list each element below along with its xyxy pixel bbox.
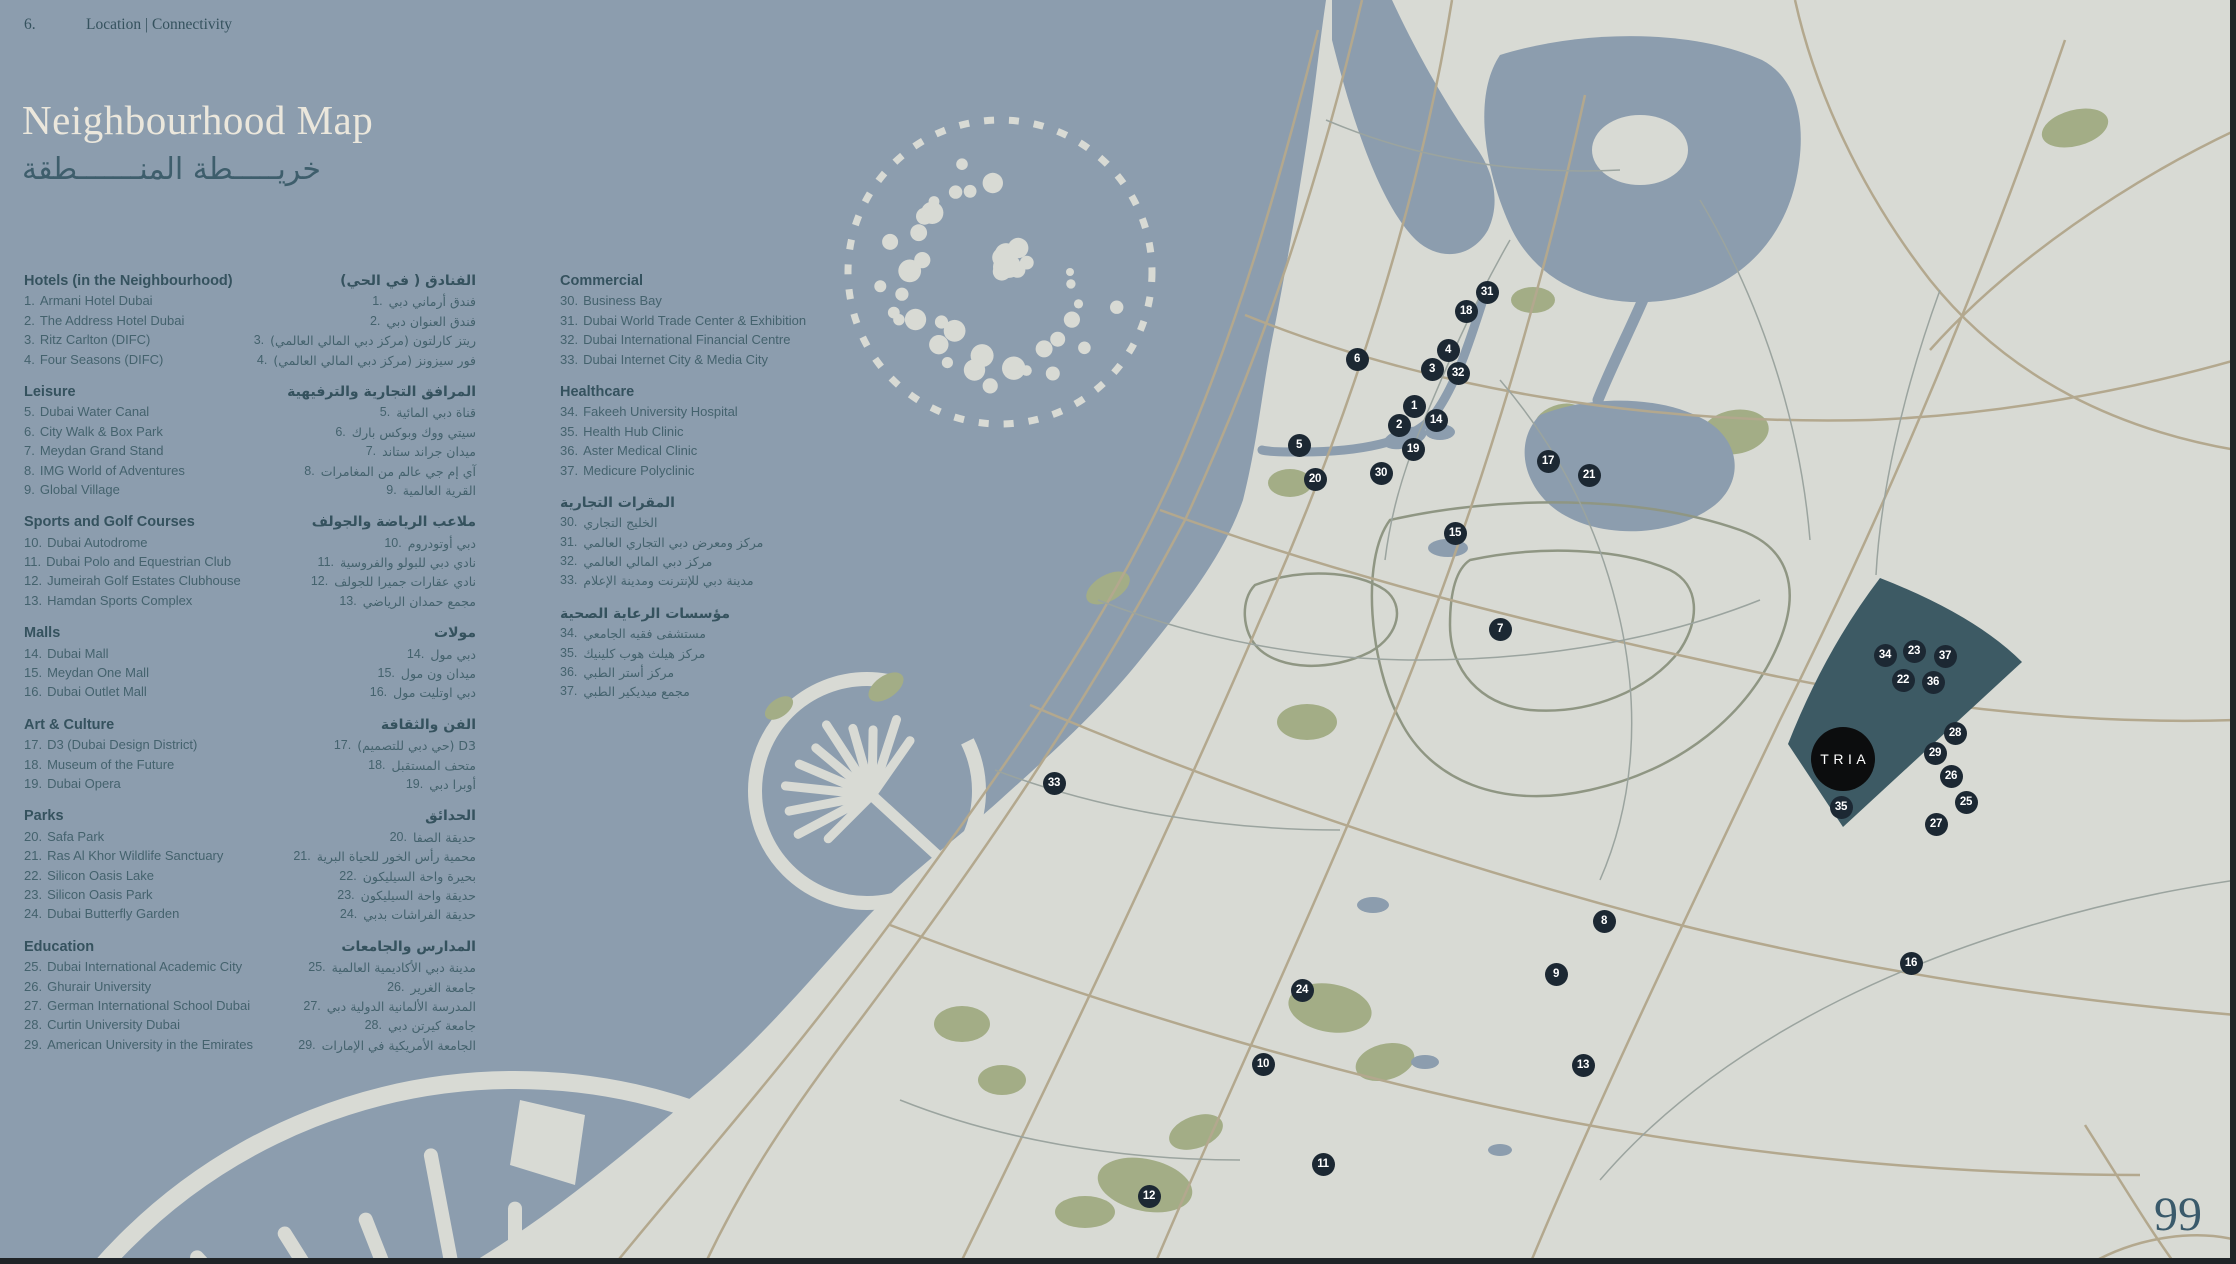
- legend-item-number: 34.: [560, 402, 578, 421]
- map-marker-number: 5: [1296, 439, 1302, 451]
- legend-item-en: 5.Dubai Water Canal: [24, 402, 149, 421]
- legend-category-header: Educationالمدارس والجامعات: [24, 938, 476, 957]
- legend-item-ar: 34.مستشفى فقيه الجامعي: [560, 624, 706, 643]
- map-marker-number: 22: [1897, 674, 1909, 686]
- legend-item-label-en: Meydan One Mall: [47, 663, 149, 682]
- legend-item-ar: 1.فندق أرماني دبي: [372, 292, 476, 311]
- legend-item-ar: 20.حديقة الصفا: [390, 828, 476, 847]
- legend-left-column: Hotels (in the Neighbourhood)الفنادق ( ف…: [24, 272, 476, 1068]
- legend-middle-column: Commercial30.Business Bay31.Dubai World …: [560, 272, 890, 716]
- legend-category-header: Leisureالمرافق التجارية والترفيهية: [24, 383, 476, 402]
- legend-item-label-en: Business Bay: [583, 291, 662, 310]
- legend-category-header: Healthcare: [560, 383, 890, 402]
- legend-item-en: 1.Armani Hotel Dubai: [24, 291, 153, 310]
- legend-item: 30.الخليج التجاري: [560, 513, 890, 532]
- legend-item-number: 16.: [370, 683, 387, 702]
- legend-item-label-en: Health Hub Clinic: [583, 422, 683, 441]
- map-marker-27: 27: [1925, 813, 1948, 836]
- legend-item: 34.Fakeeh University Hospital: [560, 402, 890, 421]
- legend-item-number: 17.: [334, 736, 351, 755]
- map-marker-number: 27: [1930, 818, 1942, 830]
- legend-item-en: 36.Aster Medical Clinic: [560, 441, 697, 460]
- legend-item: 31.مركز ومعرض دبي التجاري العالمي: [560, 533, 890, 552]
- legend-item-en: 20.Safa Park: [24, 827, 104, 846]
- legend-item-label-ar: مركز ومعرض دبي التجاري العالمي: [583, 533, 763, 552]
- legend-item-en: 26.Ghurair University: [24, 977, 151, 996]
- legend-item-ar: 36.مركز أستر الطبي: [560, 663, 674, 682]
- legend-item-ar: 13.مجمع حمدان الرياضي: [339, 592, 476, 611]
- map-marker-number: 36: [1927, 676, 1939, 688]
- legend-item-number: 17.: [24, 735, 42, 754]
- legend-item: 11.Dubai Polo and Equestrian Club11.نادي…: [24, 552, 476, 571]
- legend-item-label-en: The Address Hotel Dubai: [40, 311, 185, 330]
- legend-item-en: 35.Health Hub Clinic: [560, 422, 684, 441]
- legend-item-ar: 16.دبي اوتليت مول: [370, 683, 476, 702]
- legend-item-number: 29.: [24, 1035, 42, 1054]
- map-marker-number: 14: [1430, 414, 1442, 426]
- map-marker-2: 2: [1388, 414, 1411, 437]
- legend-item-label-en: Silicon Oasis Lake: [47, 866, 154, 885]
- legend-item-label-en: Medicure Polyclinic: [583, 461, 694, 480]
- legend-item-label-en: Dubai World Trade Center & Exhibition: [583, 311, 806, 330]
- legend-item: 9.Global Village9.القرية العالمية: [24, 480, 476, 499]
- legend-middle-english: Commercial30.Business Bay31.Dubai World …: [560, 272, 890, 480]
- map-marker-number: 10: [1257, 1058, 1269, 1070]
- page-title: Neighbourhood Map: [22, 96, 373, 144]
- map-marker-number: 31: [1481, 286, 1493, 298]
- legend-item-label-en: Curtin University Dubai: [47, 1015, 180, 1034]
- legend-item-number: 34.: [560, 624, 577, 643]
- map-marker-15: 15: [1444, 522, 1467, 545]
- legend-item-number: 3.: [24, 330, 35, 349]
- legend-item-label-en: Dubai Opera: [47, 774, 121, 793]
- legend-item-number: 21.: [293, 847, 310, 866]
- legend-item-number: 25.: [24, 957, 42, 976]
- legend-item-number: 33.: [560, 350, 578, 369]
- legend-heading-en: Hotels (in the Neighbourhood): [24, 272, 233, 291]
- map-marker-number: 37: [1939, 650, 1951, 662]
- legend-item-en: 34.Fakeeh University Hospital: [560, 402, 738, 421]
- map-marker-number: 15: [1449, 527, 1461, 539]
- legend-item: 24.Dubai Butterfly Garden24.حديقة الفراش…: [24, 904, 476, 923]
- legend-item-label-en: Fakeeh University Hospital: [583, 402, 738, 421]
- legend-item-number: 11.: [24, 552, 41, 571]
- legend-item-en: 9.Global Village: [24, 480, 120, 499]
- legend-item-label-ar: الخليج التجاري: [583, 513, 657, 532]
- legend-item-number: 23.: [24, 885, 42, 904]
- legend-item-ar: 21.محمية رأس الخور للحياة البرية: [293, 847, 476, 866]
- legend-item: 32.Dubai International Financial Centre: [560, 330, 890, 349]
- legend-item: 29.American University in the Emirates29…: [24, 1035, 476, 1054]
- map-marker-1: 1: [1403, 395, 1426, 418]
- legend-item-ar: 4.فور سيزونز (مركز دبي المالي العالمي): [257, 351, 476, 370]
- legend-item-label-en: City Walk & Box Park: [40, 422, 163, 441]
- legend-item-ar: 9.القرية العالمية: [386, 481, 476, 500]
- map-marker-5: 5: [1288, 434, 1311, 457]
- legend-item-number: 2.: [24, 311, 35, 330]
- legend-item-label-ar: دبي اوتليت مول: [393, 683, 476, 702]
- legend-category: Art & Cultureالفن والثقافة17.D3 (Dubai D…: [24, 716, 476, 794]
- legend-item-label-ar: أوبرا دبي: [429, 775, 476, 794]
- legend-item-label-en: Silicon Oasis Park: [47, 885, 152, 904]
- legend-item-ar: 5.قناة دبي المائية: [380, 403, 476, 422]
- map-marker-number: 19: [1407, 443, 1419, 455]
- legend-item-en: 7.Meydan Grand Stand: [24, 441, 163, 460]
- legend-item-label-en: Dubai Water Canal: [40, 402, 149, 421]
- legend-item-number: 10.: [384, 534, 401, 553]
- legend-item-number: 18.: [24, 755, 42, 774]
- legend-item-number: 24.: [340, 905, 357, 924]
- legend-item-number: 3.: [254, 331, 264, 350]
- legend-item-label-ar: فندق أرماني دبي: [389, 292, 476, 311]
- legend-item-ar: 32.مركز دبي المالي العالمي: [560, 552, 712, 571]
- legend-item-number: 25.: [308, 958, 325, 977]
- legend-item-en: 10.Dubai Autodrome: [24, 533, 148, 552]
- map-marker-number: 17: [1542, 455, 1554, 467]
- map-marker-number: 23: [1908, 645, 1920, 657]
- legend-item-number: 4.: [257, 351, 267, 370]
- legend-item-ar: 22.بحيرة واحة السيليكون: [339, 867, 476, 886]
- legend-item: 16.Dubai Outlet Mall16.دبي اوتليت مول: [24, 682, 476, 701]
- legend-item-number: 31.: [560, 533, 577, 552]
- legend-item: 2.The Address Hotel Dubai2.فندق العنوان …: [24, 311, 476, 330]
- legend-item-label-ar: قناة دبي المائية: [396, 403, 476, 422]
- legend-item-label-ar: محمية رأس الخور للحياة البرية: [317, 847, 476, 866]
- legend-item-en: 6.City Walk & Box Park: [24, 422, 163, 441]
- legend-item-number: 30.: [560, 291, 578, 310]
- legend-item-label-en: D3 (Dubai Design District): [47, 735, 197, 754]
- legend-heading-ar: ملاعب الرياضة والجولف: [312, 513, 476, 532]
- legend-item-label-en: Dubai Mall: [47, 644, 108, 663]
- map-marker-19: 19: [1402, 438, 1425, 461]
- map-marker-number: 32: [1452, 367, 1464, 379]
- legend-item-en: 30.Business Bay: [560, 291, 662, 310]
- legend-item-number: 7.: [24, 441, 35, 460]
- legend-item-label-ar: حديقة واحة السيليكون: [361, 886, 476, 905]
- legend-item-label-ar: فور سيزونز (مركز دبي المالي العالمي): [273, 351, 476, 370]
- map-marker-13: 13: [1572, 1054, 1595, 1077]
- legend-item-number: 35.: [560, 644, 577, 663]
- legend-item-number: 28.: [365, 1016, 382, 1035]
- legend-item-en: 33.Dubai Internet City & Media City: [560, 350, 768, 369]
- legend-item: 23.Silicon Oasis Park23.حديقة واحة السيل…: [24, 885, 476, 904]
- map-marker-6: 6: [1346, 348, 1369, 371]
- legend-item: 27.German International School Dubai27.ا…: [24, 996, 476, 1015]
- legend-item-ar: 15.ميدان ون مول: [378, 664, 476, 683]
- map-marker-16: 16: [1900, 952, 1923, 975]
- legend-middle-arabic: المقرات التجارية30.الخليج التجاري31.مركز…: [560, 494, 890, 702]
- legend-item-number: 16.: [24, 682, 42, 701]
- map-marker-26: 26: [1940, 765, 1963, 788]
- legend-item-number: 8.: [304, 462, 314, 481]
- legend-item-label-ar: بحيرة واحة السيليكون: [363, 867, 476, 886]
- legend-item-label-en: Safa Park: [47, 827, 104, 846]
- map-marker-7: 7: [1489, 618, 1512, 641]
- legend-item-ar: 3.ريتز كارلتون (مركز دبي المالي العالمي): [254, 331, 476, 350]
- legend-item: 18.Museum of the Future18.متحف المستقبل: [24, 755, 476, 774]
- legend-heading-en: Education: [24, 938, 94, 957]
- map-marker-9: 9: [1545, 963, 1568, 986]
- legend-heading-ar: مؤسسات الرعاية الصحية: [560, 605, 730, 624]
- map-marker-number: 28: [1949, 727, 1961, 739]
- legend-item-en: 17.D3 (Dubai Design District): [24, 735, 197, 754]
- legend-item-number: 1.: [372, 292, 382, 311]
- map-marker-22: 22: [1892, 669, 1915, 692]
- legend-item: 30.Business Bay: [560, 291, 890, 310]
- legend-category-header: المقرات التجارية: [560, 494, 890, 513]
- legend-item-label-ar: مجمع ميديكير الطبي: [583, 682, 689, 701]
- legend-item-ar: 24.حديقة الفراشات بدبي: [340, 905, 476, 924]
- legend-category: Commercial30.Business Bay31.Dubai World …: [560, 272, 890, 369]
- legend-category: Sports and Golf Coursesملاعب الرياضة وال…: [24, 513, 476, 610]
- legend-item: 35.مركز هيلث هوب كلينيك: [560, 644, 890, 663]
- legend-item-ar: 30.الخليج التجاري: [560, 513, 657, 532]
- legend-item-ar: 28.جامعة كيرتن دبي: [365, 1016, 476, 1035]
- legend-item: 33.مدينة دبي للإنترنت ومدينة الإعلام: [560, 571, 890, 590]
- legend-item-number: 4.: [24, 350, 35, 369]
- map-marker-34: 34: [1874, 644, 1897, 667]
- map-marker-number: 6: [1354, 353, 1360, 365]
- legend-heading-ar: الفن والثقافة: [381, 716, 476, 735]
- legend-item-number: 29.: [298, 1036, 315, 1055]
- legend-item-number: 37.: [560, 461, 578, 480]
- legend-item-ar: 10.دبي أوتودروم: [384, 534, 476, 553]
- legend-category: Educationالمدارس والجامعات25.Dubai Inter…: [24, 938, 476, 1054]
- legend-item-en: 14.Dubai Mall: [24, 644, 109, 663]
- breadcrumb: Location | Connectivity: [86, 16, 232, 34]
- legend-item-en: 31.Dubai World Trade Center & Exhibition: [560, 311, 806, 330]
- legend-item-number: 14.: [24, 644, 42, 663]
- legend-category-arabic: المقرات التجارية30.الخليج التجاري31.مركز…: [560, 494, 890, 591]
- legend-item-label-ar: فندق العنوان دبي: [386, 312, 476, 331]
- legend-item: 12.Jumeirah Golf Estates Clubhouse12.ناد…: [24, 571, 476, 590]
- legend-item: 35.Health Hub Clinic: [560, 422, 890, 441]
- legend-item-number: 28.: [24, 1015, 42, 1034]
- map-marker-30: 30: [1370, 462, 1393, 485]
- legend-item-label-en: Ras Al Khor Wildlife Sanctuary: [47, 846, 223, 865]
- legend-item-number: 7.: [366, 442, 376, 461]
- legend-item: 20.Safa Park20.حديقة الصفا: [24, 827, 476, 846]
- map-marker-number: 34: [1879, 649, 1891, 661]
- page-header: 6. Location | Connectivity: [24, 16, 624, 34]
- legend-item-number: 5.: [380, 403, 390, 422]
- map-marker-number: 29: [1929, 747, 1941, 759]
- legend-item-en: 15.Meydan One Mall: [24, 663, 149, 682]
- legend-item: 37.Medicure Polyclinic: [560, 461, 890, 480]
- map-marker-number: 20: [1309, 473, 1321, 485]
- legend-item: 25.Dubai International Academic City25.م…: [24, 957, 476, 976]
- legend-category-header: Parksالحدائق: [24, 807, 476, 826]
- legend-item: 31.Dubai World Trade Center & Exhibition: [560, 311, 890, 330]
- legend-item-label-ar: مدينة دبي للإنترنت ومدينة الإعلام: [583, 571, 753, 590]
- legend-item-label-ar: مجمع حمدان الرياضي: [363, 592, 476, 611]
- map-marker-number: 13: [1577, 1059, 1589, 1071]
- legend-item-number: 6.: [24, 422, 35, 441]
- map-marker-17: 17: [1537, 450, 1560, 473]
- legend-item-label-ar: D3 (حي دبي للتصميم): [357, 736, 476, 755]
- map-marker-25: 25: [1955, 791, 1978, 814]
- legend-item-en: 13.Hamdan Sports Complex: [24, 591, 192, 610]
- project-marker-tria: TRIA: [1811, 727, 1875, 791]
- legend-item: 28.Curtin University Dubai28.جامعة كيرتن…: [24, 1015, 476, 1034]
- legend-item-label-en: Aster Medical Clinic: [583, 441, 697, 460]
- legend-item-label-ar: القرية العالمية: [403, 481, 476, 500]
- map-marker-number: 25: [1960, 796, 1972, 808]
- legend-item-number: 30.: [560, 513, 577, 532]
- legend-heading-en: Sports and Golf Courses: [24, 513, 195, 532]
- legend-item-label-en: Dubai Autodrome: [47, 533, 147, 552]
- legend-item-label-en: Dubai Polo and Equestrian Club: [46, 552, 231, 571]
- legend-item-ar: 2.فندق العنوان دبي: [370, 312, 476, 331]
- legend-category: Leisureالمرافق التجارية والترفيهية5.Duba…: [24, 383, 476, 499]
- legend-item: 33.Dubai Internet City & Media City: [560, 350, 890, 369]
- legend-item: 10.Dubai Autodrome10.دبي أوتودروم: [24, 533, 476, 552]
- legend-item-number: 15.: [378, 664, 395, 683]
- legend-item-ar: 29.الجامعة الأمريكية في الإمارات: [298, 1036, 476, 1055]
- legend-item-ar: 26.جامعة الغرير: [387, 978, 476, 997]
- legend-item-label-en: Dubai International Financial Centre: [583, 330, 790, 349]
- legend-item-en: 22.Silicon Oasis Lake: [24, 866, 154, 885]
- map-marker-31: 31: [1476, 281, 1499, 304]
- legend-item-number: 2.: [370, 312, 380, 331]
- legend-item-label-en: Hamdan Sports Complex: [47, 591, 192, 610]
- legend-item-ar: 37.مجمع ميديكير الطبي: [560, 682, 690, 701]
- map-marker-24: 24: [1291, 979, 1314, 1002]
- legend-heading-ar: الفنادق ( في الحي): [340, 272, 476, 291]
- map-marker-14: 14: [1425, 409, 1448, 432]
- legend-item-en: 25.Dubai International Academic City: [24, 957, 242, 976]
- map-marker-21: 21: [1578, 464, 1601, 487]
- map-marker-number: 24: [1296, 984, 1308, 996]
- legend-item-en: 28.Curtin University Dubai: [24, 1015, 180, 1034]
- legend-item-number: 19.: [406, 775, 423, 794]
- legend-category: Hotels (in the Neighbourhood)الفنادق ( ف…: [24, 272, 476, 369]
- legend-item-number: 37.: [560, 682, 577, 701]
- map-marker-36: 36: [1922, 671, 1945, 694]
- legend-item-number: 36.: [560, 441, 578, 460]
- legend-item-number: 9.: [386, 481, 396, 500]
- legend-item-en: 4.Four Seasons (DIFC): [24, 350, 163, 369]
- legend-category-header: Hotels (in the Neighbourhood)الفنادق ( ف…: [24, 272, 476, 291]
- legend-item-label-ar: ميدان جراند ستاند: [382, 442, 476, 461]
- map-marker-number: 7: [1497, 623, 1503, 635]
- legend-item-label-en: Four Seasons (DIFC): [40, 350, 164, 369]
- map-marker-18: 18: [1455, 300, 1478, 323]
- legend-heading-en: Art & Culture: [24, 716, 114, 735]
- legend-item-en: 21.Ras Al Khor Wildlife Sanctuary: [24, 846, 223, 865]
- legend-item-label-ar: مركز أستر الطبي: [583, 663, 674, 682]
- legend-item-ar: 6.سيتي ووك وبوكس بارك: [335, 423, 476, 442]
- legend-item-label-ar: ميدان ون مول: [401, 664, 476, 683]
- legend-item-number: 5.: [24, 402, 35, 421]
- legend-item-en: 18.Museum of the Future: [24, 755, 174, 774]
- legend-item: 15.Meydan One Mall15.ميدان ون مول: [24, 663, 476, 682]
- legend-item-label-ar: سيتي ووك وبوكس بارك: [352, 423, 476, 442]
- legend-item-en: 16.Dubai Outlet Mall: [24, 682, 147, 701]
- page-number: 99: [2154, 1187, 2202, 1242]
- legend-item-label-ar: آي إم جي عالم من المغامرات: [321, 462, 476, 481]
- legend-item-number: 35.: [560, 422, 578, 441]
- legend-item-en: 19.Dubai Opera: [24, 774, 121, 793]
- map-marker-20: 20: [1304, 468, 1327, 491]
- legend-item: 32.مركز دبي المالي العالمي: [560, 552, 890, 571]
- legend-heading-ar: مولات: [434, 624, 476, 643]
- legend-item-label-en: Dubai Internet City & Media City: [583, 350, 768, 369]
- legend-item-number: 12.: [311, 572, 328, 591]
- legend-item-en: 37.Medicure Polyclinic: [560, 461, 694, 480]
- page-title-arabic: خريـــــطة المنـــــــطقة: [22, 152, 321, 187]
- legend-heading-en: Commercial: [560, 272, 643, 291]
- map-marker-29: 29: [1924, 742, 1947, 765]
- legend-category-header: Sports and Golf Coursesملاعب الرياضة وال…: [24, 513, 476, 532]
- legend-item: 22.Silicon Oasis Lake22.بحيرة واحة السيل…: [24, 866, 476, 885]
- legend-item: 37.مجمع ميديكير الطبي: [560, 682, 890, 701]
- legend-item-number: 19.: [24, 774, 42, 793]
- legend-item-ar: 11.نادي دبي للبولو والفروسية: [318, 553, 476, 572]
- legend-item-number: 1.: [24, 291, 35, 310]
- legend-category: Parksالحدائق20.Safa Park20.حديقة الصفا21…: [24, 807, 476, 923]
- legend-item: 1.Armani Hotel Dubai1.فندق أرماني دبي: [24, 291, 476, 310]
- map-marker-number: 21: [1583, 469, 1595, 481]
- legend-item-label-ar: متحف المستقبل: [392, 756, 476, 775]
- legend-category-header: Commercial: [560, 272, 890, 291]
- legend-category-header: مؤسسات الرعاية الصحية: [560, 605, 890, 624]
- legend-item-number: 21.: [24, 846, 42, 865]
- legend-heading-ar: المقرات التجارية: [560, 494, 675, 513]
- legend-item-label-ar: الجامعة الأمريكية في الإمارات: [322, 1036, 476, 1055]
- legend-item-en: 3.Ritz Carlton (DIFC): [24, 330, 150, 349]
- map-marker-4: 4: [1437, 339, 1460, 362]
- legend-item-label-ar: مركز هيلث هوب كلينيك: [583, 644, 705, 663]
- legend-item-label-ar: نادي دبي للبولو والفروسية: [340, 553, 476, 572]
- legend-category: Healthcare34.Fakeeh University Hospital3…: [560, 383, 890, 480]
- page-edge-bottom: [0, 1258, 2236, 1264]
- legend-item-label-en: Meydan Grand Stand: [40, 441, 164, 460]
- world-islands: [874, 158, 1123, 393]
- legend-item-label-ar: ريتز كارلتون (مركز دبي المالي العالمي): [270, 331, 476, 350]
- legend-item-en: 2.The Address Hotel Dubai: [24, 311, 184, 330]
- legend-item-label-en: Global Village: [40, 480, 120, 499]
- legend-item-label-en: Ghurair University: [47, 977, 151, 996]
- legend-item-en: 29.American University in the Emirates: [24, 1035, 253, 1054]
- legend-item-label-en: Ritz Carlton (DIFC): [40, 330, 151, 349]
- legend-item-number: 27.: [303, 997, 320, 1016]
- map-marker-number: 8: [1601, 915, 1607, 927]
- legend-category-header: Mallsمولات: [24, 624, 476, 643]
- map-marker-number: 4: [1445, 344, 1451, 356]
- map-marker-number: 18: [1460, 305, 1472, 317]
- legend-item-en: 24.Dubai Butterfly Garden: [24, 904, 179, 923]
- legend-item-ar: 23.حديقة واحة السيليكون: [337, 886, 476, 905]
- legend-item: 36.مركز أستر الطبي: [560, 663, 890, 682]
- legend-item-label-ar: حديقة الصفا: [413, 828, 476, 847]
- legend-item-label-ar: مدينة دبي الأكاديمية العالمية: [332, 958, 476, 977]
- legend-item-en: 27.German International School Dubai: [24, 996, 250, 1015]
- legend-item-number: 24.: [24, 904, 42, 923]
- legend-item-number: 31.: [560, 311, 578, 330]
- legend-item-number: 8.: [24, 461, 35, 480]
- map-marker-12: 12: [1138, 1185, 1161, 1208]
- legend-category: Mallsمولات14.Dubai Mall14.دبي مول15.Meyd…: [24, 624, 476, 702]
- legend-item-label-en: German International School Dubai: [47, 996, 250, 1015]
- brochure-page: { "header": { "index": "6.", "label": "L…: [0, 0, 2236, 1264]
- map-marker-number: 1: [1411, 400, 1417, 412]
- harbour-island: [510, 1100, 585, 1185]
- legend-item-ar: 33.مدينة دبي للإنترنت ومدينة الإعلام: [560, 571, 754, 590]
- legend-heading-ar: المرافق التجارية والترفيهية: [287, 383, 476, 402]
- legend-item: 13.Hamdan Sports Complex13.مجمع حمدان ال…: [24, 591, 476, 610]
- legend-item-number: 13.: [24, 591, 42, 610]
